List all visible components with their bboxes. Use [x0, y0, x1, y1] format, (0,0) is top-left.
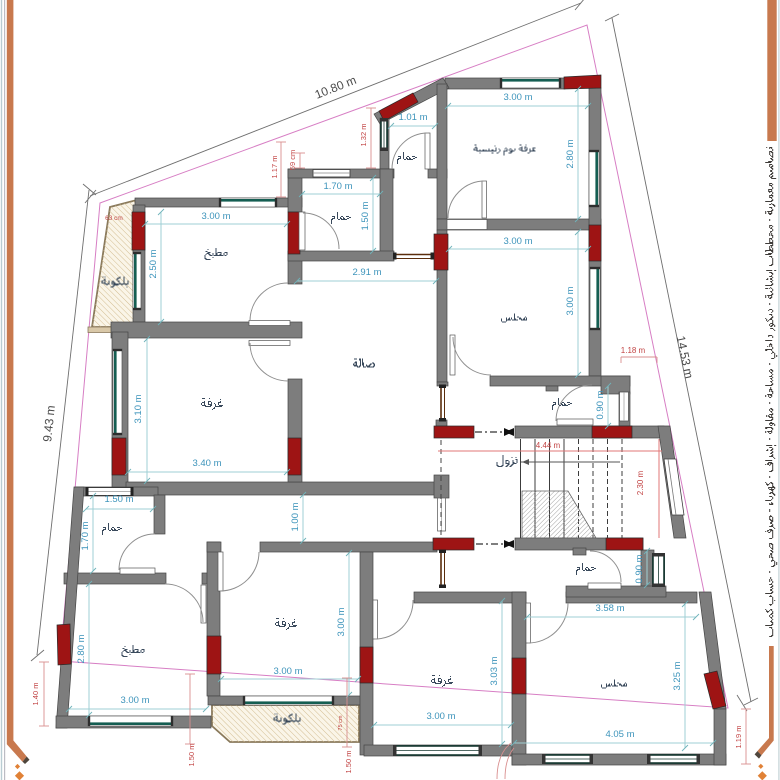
svg-text:1.17 m: 1.17 m: [270, 156, 279, 179]
svg-text:1.40 m: 1.40 m: [31, 683, 40, 706]
svg-text:1.50 m: 1.50 m: [104, 494, 133, 505]
svg-text:0.90 m: 0.90 m: [634, 554, 645, 583]
svg-text:3.00 m: 3.00 m: [565, 286, 576, 315]
svg-text:3.00 m: 3.00 m: [336, 607, 347, 636]
svg-text:3.00 m: 3.00 m: [503, 236, 532, 247]
svg-text:4.05 m: 4.05 m: [605, 729, 634, 740]
svg-text:2.50 m: 2.50 m: [148, 249, 159, 278]
svg-text:3.03 m: 3.03 m: [489, 656, 500, 685]
svg-text:2.80 m: 2.80 m: [76, 634, 87, 663]
svg-text:0.90 m: 0.90 m: [595, 390, 606, 419]
svg-text:2.80 m: 2.80 m: [565, 139, 576, 168]
svg-text:1.50 m: 1.50 m: [187, 744, 196, 767]
svg-text:1.01 m: 1.01 m: [398, 112, 427, 123]
svg-text:1.32 m: 1.32 m: [359, 124, 368, 147]
svg-text:2.30 m: 2.30 m: [636, 470, 645, 495]
svg-text:1.70 m: 1.70 m: [323, 181, 352, 192]
svg-text:3.00 m: 3.00 m: [426, 711, 455, 722]
svg-text:1.50 m: 1.50 m: [344, 751, 353, 774]
svg-text:63 cm: 63 cm: [105, 215, 123, 222]
svg-text:1.19 m: 1.19 m: [734, 726, 743, 749]
svg-text:3.00 m: 3.00 m: [503, 92, 532, 103]
svg-text:3.00 m: 3.00 m: [120, 695, 149, 706]
svg-text:2.91 m: 2.91 m: [352, 267, 381, 278]
svg-text:3.25 m: 3.25 m: [672, 661, 683, 690]
svg-text:1.18 m: 1.18 m: [621, 346, 646, 355]
svg-text:4.44 m: 4.44 m: [536, 441, 561, 450]
svg-text:75 cm: 75 cm: [338, 715, 344, 730]
svg-text:3.58 m: 3.58 m: [595, 603, 624, 614]
svg-text:3.10 m: 3.10 m: [133, 394, 144, 423]
svg-text:3.00 m: 3.00 m: [273, 666, 302, 677]
svg-text:59 cm: 59 cm: [288, 150, 297, 170]
svg-text:1.50 m: 1.50 m: [360, 201, 371, 230]
svg-text:1.70 m: 1.70 m: [80, 521, 91, 550]
svg-text:1.00 m: 1.00 m: [290, 502, 301, 531]
svg-text:3.00 m: 3.00 m: [201, 211, 230, 222]
svg-text:3.40 m: 3.40 m: [192, 458, 221, 469]
